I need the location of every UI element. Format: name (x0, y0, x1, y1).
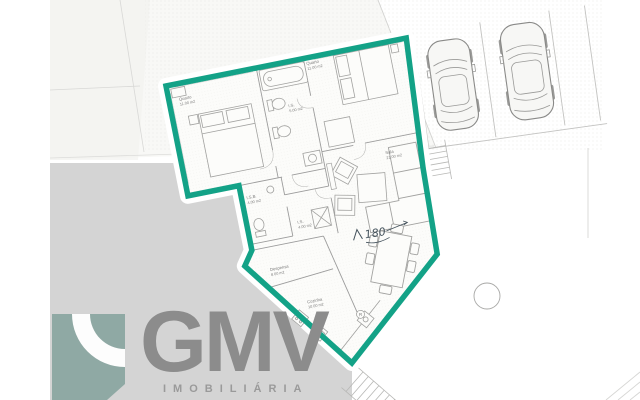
coffee-table (357, 173, 387, 203)
brand-tagline: IMOBILIÁRIA (163, 383, 308, 395)
brand-text: GMV (140, 306, 327, 378)
brand-mark (52, 314, 125, 400)
armchair-2 (335, 195, 355, 215)
floor-plan-scan: R 180 Quarto 11.00 m2 Quarto 11.00 m2 I.… (0, 0, 640, 400)
sink-main (303, 150, 322, 166)
